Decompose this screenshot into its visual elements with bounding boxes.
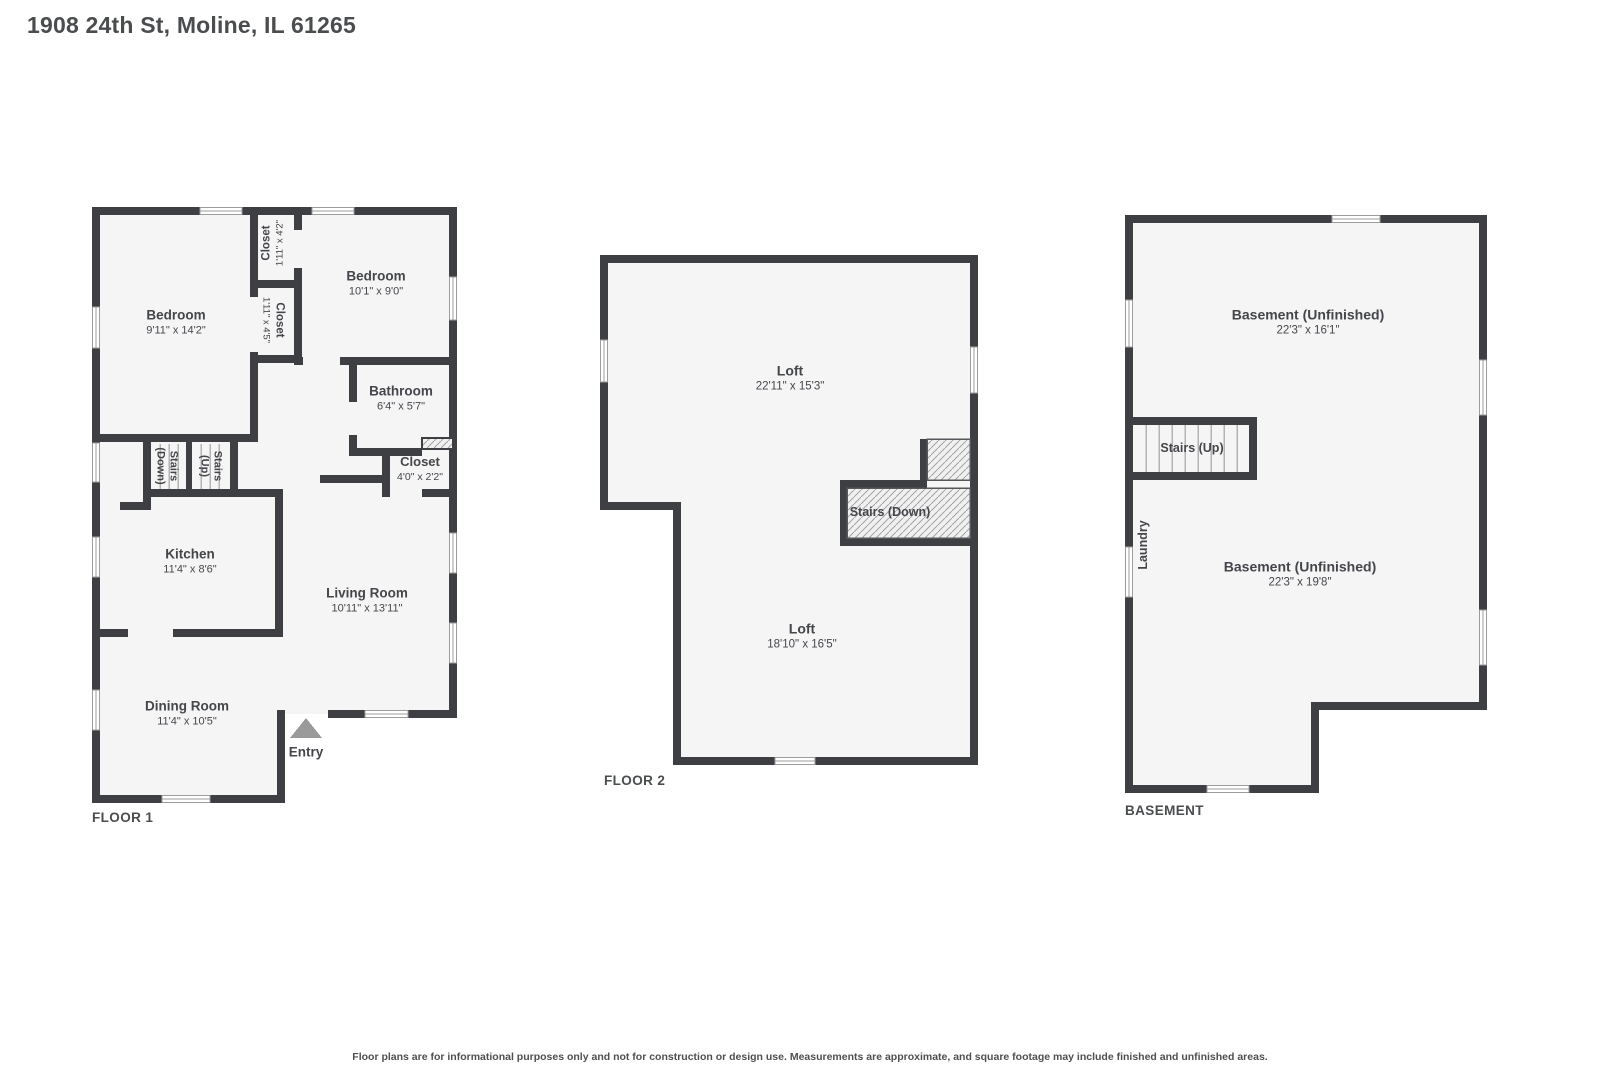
room-name: Bedroom [146, 306, 206, 324]
room-name: Living Room [326, 584, 408, 602]
page-title: 1908 24th St, Moline, IL 61265 [27, 12, 356, 39]
stairs-down-label-floor1: Stairs (Down) [154, 443, 179, 489]
basement-tag: BASEMENT [1125, 803, 1204, 818]
room-name: Basement (Unfinished) [1224, 558, 1376, 576]
room-label-basement-upper: Basement (Unfinished) 22'3" x 16'1" [1232, 306, 1384, 339]
entry-label: Entry [289, 745, 324, 760]
room-dims: 10'1" x 9'0" [346, 285, 405, 299]
room-label-living-room: Living Room 10'11" x 13'11" [326, 584, 408, 615]
room-name: Closet [271, 297, 286, 343]
floor-plan-page: 1908 24th St, Moline, IL 61265 Bedroom 9… [0, 0, 1620, 1080]
room-label-dining-room: Dining Room 11'4" x 10'5" [145, 697, 229, 728]
stairs-up-label-floor1: Stairs (Up) [198, 443, 223, 489]
stairs-up-label-basement: Stairs (Up) [1160, 441, 1223, 455]
laundry-label: Laundry [1136, 520, 1150, 569]
room-label-basement-lower: Basement (Unfinished) 22'3" x 19'8" [1224, 558, 1376, 591]
room-dims: 22'11" x 15'3" [756, 380, 825, 394]
room-dims: 11'4" x 8'6" [163, 563, 216, 577]
floor-fills [96, 211, 1483, 799]
room-dims: 22'3" x 16'1" [1232, 324, 1384, 338]
room-name: Closet [397, 454, 443, 471]
room-label-closet-3: Closet 4'0" x 2'2" [397, 454, 443, 484]
floor1-tag: FLOOR 1 [92, 810, 153, 825]
room-dims: 11'4" x 10'5" [145, 715, 229, 729]
room-label-closet-2: Closet 1'11" x 4'5" [260, 297, 287, 343]
room-dims: 9'11" x 14'2" [146, 324, 206, 338]
room-name: Kitchen [163, 545, 216, 563]
room-label-bedroom-2: Bedroom 10'1" x 9'0" [346, 267, 405, 298]
room-dims: 22'3" x 19'8" [1224, 576, 1376, 590]
room-label-loft-lower: Loft 18'10" x 16'5" [767, 620, 836, 653]
room-name: Closet [260, 220, 275, 266]
room-name: Dining Room [145, 697, 229, 715]
room-name: Bedroom [346, 267, 405, 285]
stairs-down-label-floor2: Stairs (Down) [850, 505, 931, 519]
room-label-kitchen: Kitchen 11'4" x 8'6" [163, 545, 216, 576]
room-dims: 1'11" x 4'2" [275, 220, 287, 266]
room-name: Bathroom [369, 382, 433, 400]
floor1-attic-hatch [422, 438, 453, 449]
floor2-tag: FLOOR 2 [604, 773, 665, 788]
room-dims: 10'11" x 13'11" [326, 602, 408, 616]
room-dims: 18'10" x 16'5" [767, 638, 836, 652]
room-label-loft-upper: Loft 22'11" x 15'3" [756, 362, 825, 395]
room-label-bedroom-1: Bedroom 9'11" x 14'2" [146, 306, 206, 337]
room-dims: 6'4" x 5'7" [369, 400, 433, 414]
floor-plan-canvas [0, 0, 1620, 1080]
room-name: Basement (Unfinished) [1232, 306, 1384, 324]
disclaimer-text: Floor plans are for informational purpos… [0, 1051, 1620, 1063]
room-name: Loft [756, 362, 825, 380]
room-dims: 4'0" x 2'2" [397, 471, 443, 484]
room-label-bathroom: Bathroom 6'4" x 5'7" [369, 382, 433, 413]
room-name: Loft [767, 620, 836, 638]
room-dims: 1'11" x 4'5" [260, 297, 272, 343]
room-label-closet-1: Closet 1'11" x 4'2" [260, 220, 287, 266]
entry-arrow-icon [290, 718, 322, 738]
